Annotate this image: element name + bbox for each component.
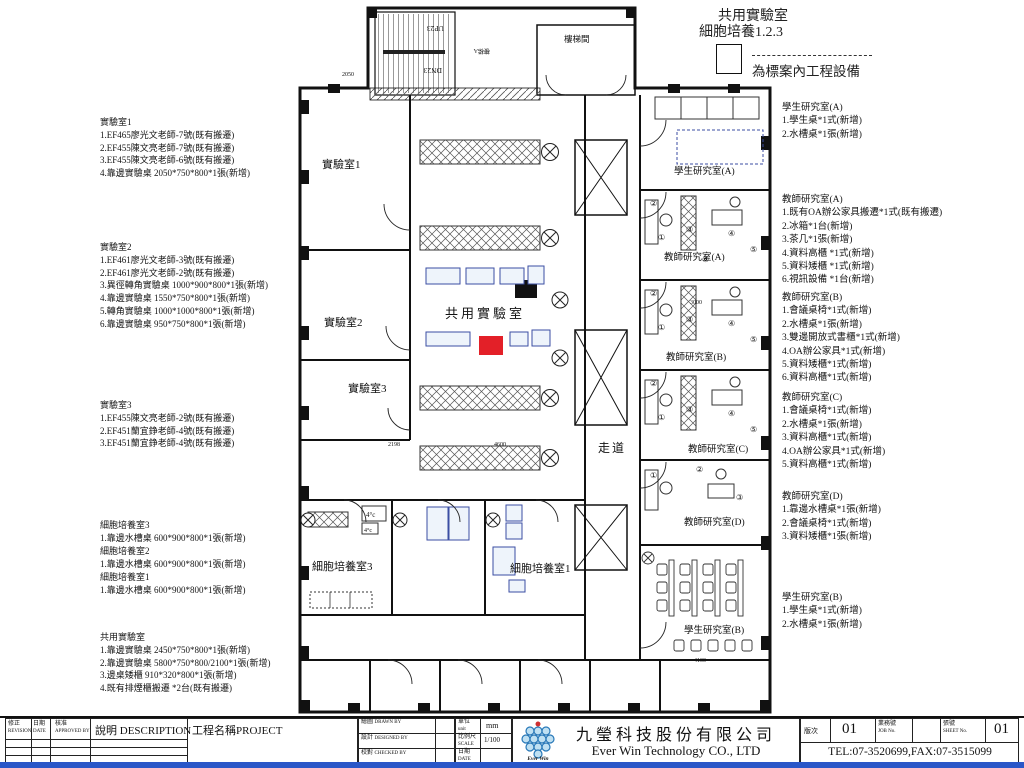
note-block-shared: 共用實驗室 1.靠邊實驗桌 2450*750*800*1張(新增) 2.靠邊實驗… [100, 631, 271, 695]
room-label-teacherC: 教師研究室(C) [688, 443, 748, 455]
approved-label: 核准 [55, 721, 67, 727]
note-line: 2.靠邊實驗桌 5800*750*800/2100*1張(新增) [100, 657, 271, 670]
svg-text:④: ④ [728, 229, 735, 238]
note-title: 教師研究室(D) [782, 491, 881, 504]
designed-by-label: 設計 [361, 735, 373, 741]
scale-label: 比例尺 [458, 734, 476, 740]
note-line: 1.EF465廖光文老師-7號(既有搬遷) [100, 129, 250, 142]
company-name-en: Ever Win Technology CO., LTD [560, 743, 792, 759]
note-block-studentB: 學生研究室(B) 1.學生桌*1式(新增) 2.水槽桌*1張(新增) [782, 592, 862, 632]
note-line: 5.資料高櫃*1式(新增) [782, 459, 885, 472]
title-block: 修正REVISION 日期DATE 核准APPROVED BY 說明 DESCR… [0, 716, 1024, 764]
circled-numbers: ②① ③④ ⑤⑥ ②① ③④ ⑤ ②① ③④ ⑤ ①② ③ [650, 199, 757, 502]
floor-plan-page: { "legend": { "title_line1": "共用實驗室", "t… [0, 0, 1024, 768]
room-label-studentA: 學生研究室(A) [674, 165, 735, 177]
stair-name-label: 樓梯A [473, 47, 490, 55]
note-line: 2.EF461廖光文老師-2號(既有搬遷) [100, 267, 268, 280]
date-label: 日期 [33, 721, 45, 727]
note-line: 4.靠邊實驗桌 2050*750*800*1張(新增) [100, 167, 250, 180]
svg-text:①: ① [650, 471, 657, 480]
svg-text:①: ① [658, 413, 665, 422]
project-label: 工程名稱PROJECT [192, 722, 282, 738]
note-title: 實驗室3 [100, 399, 234, 412]
note-line: 3.茶几*1張(新增) [782, 234, 942, 247]
checked-by-label: 校對 [361, 750, 373, 756]
svg-text:⑤: ⑤ [750, 425, 757, 434]
note-line: 6.資料高櫃*1式(新增) [782, 372, 900, 385]
note-block-lab2: 實驗室2 1.EF461廖光文老師-3號(既有搬遷) 2.EF461廖光文老師-… [100, 241, 268, 331]
note-line: 6.視訊設備 *1台(新增) [782, 274, 942, 287]
note-line: 1.EF455陳文亮老師-2號(既有搬遷) [100, 412, 234, 425]
room-label-stairhall: 樓梯間 [564, 34, 590, 44]
lab-benches [308, 140, 540, 608]
note-line: 2.冰箱*1台(新增) [782, 221, 942, 234]
note-line: 1.學生桌*1式(新增) [782, 605, 862, 618]
note-line: 1.靠邊水槽桌 600*900*800*1張(新增) [100, 584, 246, 597]
note-block-teacherD: 教師研究室(D) 1.靠邊水槽桌*1張(新增) 2.會議桌椅*1式(新增) 3.… [782, 491, 881, 545]
note-line: 5.資料矮櫃*1式(新增) [782, 359, 900, 372]
fridge-label: 4°c [364, 527, 372, 534]
note-line: 1.靠邊實驗桌 2450*750*800*1張(新增) [100, 644, 271, 657]
room-label-cell3: 細胞培養室3 [312, 559, 373, 573]
note-title: 教師研究室(B) [782, 292, 900, 305]
note-line: 3.資料矮櫃*1張(新增) [782, 531, 881, 544]
note-line: 3.雙邊開放式書櫃*1式(新增) [782, 332, 900, 345]
note-line: 1.會議桌椅*1式(新增) [782, 305, 900, 318]
note-title: 學生研究室(A) [782, 102, 862, 115]
scale-value: 1/100 [484, 736, 500, 744]
note-line: 2.EF455陳文亮老師-7號(既有搬遷) [100, 142, 250, 155]
note-line: 4.靠邊實驗桌 1550*750*800*1張(新增) [100, 292, 268, 305]
studentA-bench [655, 97, 759, 119]
stair-down-label: DN23 [423, 66, 442, 75]
window-edge [0, 762, 1024, 768]
note-block-studentA: 學生研究室(A) 1.學生桌*1式(新增) 2.水槽桌*1張(新增) [782, 102, 862, 142]
description-label: 說明 DESCRIPTION [95, 722, 191, 738]
contact-info: TEL:07-3520699,FAX:07-3515099 [806, 746, 1014, 758]
note-block-cell3: 細胞培養室3 1.靠邊水槽桌 600*900*800*1張(新增) [100, 519, 246, 545]
unit-label: 單位 [458, 719, 470, 725]
svg-text:④: ④ [728, 409, 735, 418]
room-label-studentB: 學生研究室(B) [684, 624, 744, 636]
note-line: 5.轉角實驗桌 1000*1000*800*1張(新增) [100, 305, 268, 318]
note-title: 實驗室1 [100, 116, 250, 129]
room-label-shared: 共用實驗室 [445, 306, 525, 321]
note-line: 3.邊桌矮櫃 910*320*800*1張(新增) [100, 669, 271, 682]
svg-text:2198: 2198 [388, 442, 400, 448]
note-line: 1.靠邊水槽桌 600*900*800*1張(新增) [100, 558, 246, 571]
room-label-teacherB: 教師研究室(B) [666, 351, 726, 363]
version-label: 版次 [804, 726, 818, 736]
company-logo-icon: Ever Win [518, 720, 558, 761]
note-line: 2.EF451蘭宜錚老師-4號(既有搬遷) [100, 425, 234, 438]
note-line: 4.OA辦公家具*1式(新增) [782, 346, 900, 359]
note-block-teacherC: 教師研究室(C) 1.會議桌椅*1式(新增) 2.水槽桌*1張(新增) 3.資料… [782, 392, 885, 472]
note-line: 1.學生桌*1式(新增) [782, 115, 862, 128]
note-title: 實驗室2 [100, 241, 268, 254]
version-value: 01 [842, 721, 857, 738]
note-block-teacherA: 教師研究室(A) 1.既有OA辦公家具搬遷*1式(既有搬遷) 2.冰箱*1台(新… [782, 194, 942, 288]
highlight-marker [479, 336, 503, 355]
drawn-by-label: 繪圖 [361, 719, 373, 725]
svg-text:3000: 3000 [690, 300, 702, 306]
note-line: 3.EF451蘭宜錚老師-4號(既有搬遷) [100, 437, 234, 450]
studentB-furniture [642, 552, 752, 651]
note-line: 3.資料高櫃*1式(新增) [782, 432, 885, 445]
svg-text:②: ② [696, 465, 703, 474]
note-line: 1.既有OA辦公家具搬遷*1式(既有搬遷) [782, 207, 942, 220]
note-title: 教師研究室(A) [782, 194, 942, 207]
note-line: 1.靠邊水槽桌 600*900*800*1張(新增) [100, 532, 246, 545]
elevator-shafts [575, 140, 627, 570]
sheet-no-label: 張號 [943, 721, 955, 727]
note-title: 學生研究室(B) [782, 592, 862, 605]
note-line: 3.EF455陳文亮老師-6號(既有搬遷) [100, 154, 250, 167]
note-line: 4.資料高櫃 *1式(新增) [782, 248, 942, 261]
note-line: 4.OA辦公家具*1式(新增) [782, 446, 885, 459]
note-title: 細胞培養室3 [100, 519, 246, 532]
room-label-teacherD: 教師研究室(D) [684, 516, 745, 528]
note-block-lab3: 實驗室3 1.EF455陳文亮老師-2號(既有搬遷) 2.EF451蘭宜錚老師-… [100, 399, 234, 450]
room-label-teacherA: 教師研究室(A) [664, 251, 725, 263]
note-line: 1.靠邊水槽桌*1張(新增) [782, 504, 881, 517]
unit-value: mm [486, 721, 498, 730]
note-block-cell2: 細胞培養室2 1.靠邊水槽桌 600*900*800*1張(新增) [100, 545, 246, 571]
room-label-lab1: 實驗室1 [322, 157, 361, 171]
note-title: 細胞培養室1 [100, 571, 246, 584]
svg-text:①: ① [658, 323, 665, 332]
note-line: 2.水槽桌*1張(新增) [782, 129, 862, 142]
note-line: 2.水槽桌*1張(新增) [782, 619, 862, 632]
svg-text:②: ② [650, 199, 657, 208]
note-line: 2.水槽桌*1張(新增) [782, 419, 885, 432]
svg-text:③: ③ [686, 405, 693, 414]
note-title: 共用實驗室 [100, 631, 271, 644]
room-label-corridor: 走道 [598, 441, 626, 455]
note-block-lab1: 實驗室1 1.EF465廖光文老師-7號(既有搬遷) 2.EF455陳文亮老師-… [100, 116, 250, 180]
note-line: 1.會議桌椅*1式(新增) [782, 405, 885, 418]
svg-text:4100: 4100 [694, 658, 706, 664]
revision-label: 修正 [8, 721, 20, 727]
svg-text:⑤: ⑤ [750, 245, 757, 254]
svg-text:④: ④ [728, 319, 735, 328]
note-block-cell1: 細胞培養室1 1.靠邊水槽桌 600*900*800*1張(新增) [100, 571, 246, 597]
note-line: 4.既有排煙櫃搬遷 *2台(既有搬遷) [100, 682, 271, 695]
note-line: 3.異徑轉角實驗桌 1000*900*800*1張(新增) [100, 279, 268, 292]
svg-text:②: ② [650, 289, 657, 298]
svg-text:4600: 4600 [494, 442, 506, 448]
note-line: 2.水槽桌*1張(新增) [782, 319, 900, 332]
note-line: 1.EF461廖光文老師-3號(既有搬遷) [100, 254, 268, 267]
room-label-lab3: 實驗室3 [348, 381, 387, 395]
svg-text:③: ③ [686, 315, 693, 324]
note-line: 5.資料矮櫃 *1式(新增) [782, 261, 942, 274]
note-title: 教師研究室(C) [782, 392, 885, 405]
company-name-cn: 九瑩科技股份有限公司 [560, 721, 792, 745]
svg-text:②: ② [650, 379, 657, 388]
job-no-label: 業務號 [878, 721, 896, 727]
note-line: 2.會議桌椅*1式(新增) [782, 518, 881, 531]
room-label-lab2: 實驗室2 [324, 315, 363, 329]
svg-text:⑤: ⑤ [750, 335, 757, 344]
svg-text:③: ③ [686, 225, 693, 234]
note-line: 6.靠邊實驗桌 950*750*800*1張(新增) [100, 318, 268, 331]
svg-text:③: ③ [736, 493, 743, 502]
fridge-label: 4°c [366, 511, 375, 519]
date2-label: 日期 [458, 749, 470, 755]
note-title: 細胞培養室2 [100, 545, 246, 558]
logo-text: Ever Win [526, 756, 548, 761]
room-label-cell1: 細胞培養室1 [510, 561, 571, 575]
svg-text:2050: 2050 [342, 72, 354, 78]
sheet-no-value: 01 [994, 721, 1009, 738]
note-block-teacherB: 教師研究室(B) 1.會議桌椅*1式(新增) 2.水槽桌*1張(新增) 3.雙邊… [782, 292, 900, 386]
floor-plan-drawing: 4°c 4°c ②① ③④ ⑤⑥ ②① ③④ ⑤ ②① ③④ ⑤ ①② ③ [288, 0, 780, 718]
stair-up-label: UP23 [427, 24, 444, 33]
svg-text:①: ① [658, 233, 665, 242]
